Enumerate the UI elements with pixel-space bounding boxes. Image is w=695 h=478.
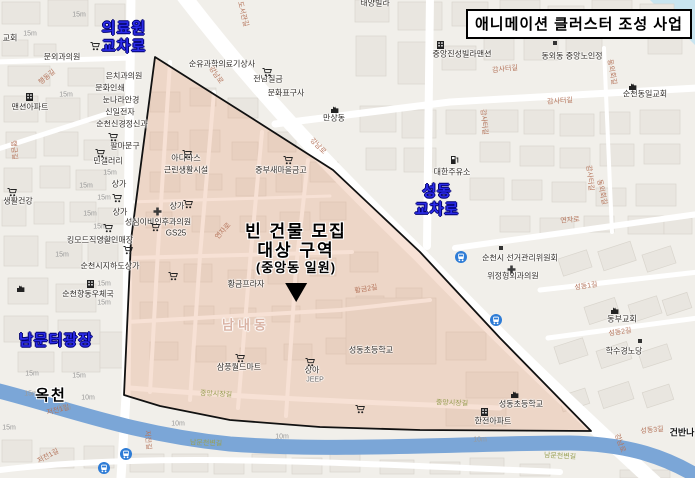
down-arrow-marker bbox=[285, 283, 307, 302]
zone-line-2: 대상 구역 bbox=[245, 241, 347, 260]
zone-line-1: 빈 건물 모집 bbox=[245, 222, 347, 241]
project-title: 애니메이션 클러스터 조성 사업 bbox=[475, 16, 683, 33]
annotation-okcheon-stream: 옥천 bbox=[35, 384, 67, 405]
basemap-graphics bbox=[0, 0, 695, 478]
annotation-nammunteo-plaza: 남문터광장 bbox=[19, 332, 93, 350]
annotation-line: 성동 bbox=[415, 183, 459, 201]
annotated-map-image: 교회문외과의원맨션아파트은치과의원문화인쇄눈나라안경신일전자순천신경정신과팔마문… bbox=[0, 0, 695, 478]
annotation-line: 교차로 bbox=[102, 38, 146, 56]
annotation-line: 교차로 bbox=[415, 201, 459, 219]
project-title-box: 애니메이션 클러스터 조성 사업 bbox=[466, 9, 692, 39]
zone-line-3: (중앙동 일원) bbox=[245, 260, 347, 276]
zone-annotation: 빈 건물 모집 대상 구역 (중앙동 일원) bbox=[245, 222, 347, 302]
annotation-line: 의료원 bbox=[102, 20, 146, 38]
annotation-seongdong-intersection: 성동 교차로 bbox=[415, 183, 459, 220]
annotation-uiryowon-intersection: 의료원 교차로 bbox=[102, 20, 146, 57]
